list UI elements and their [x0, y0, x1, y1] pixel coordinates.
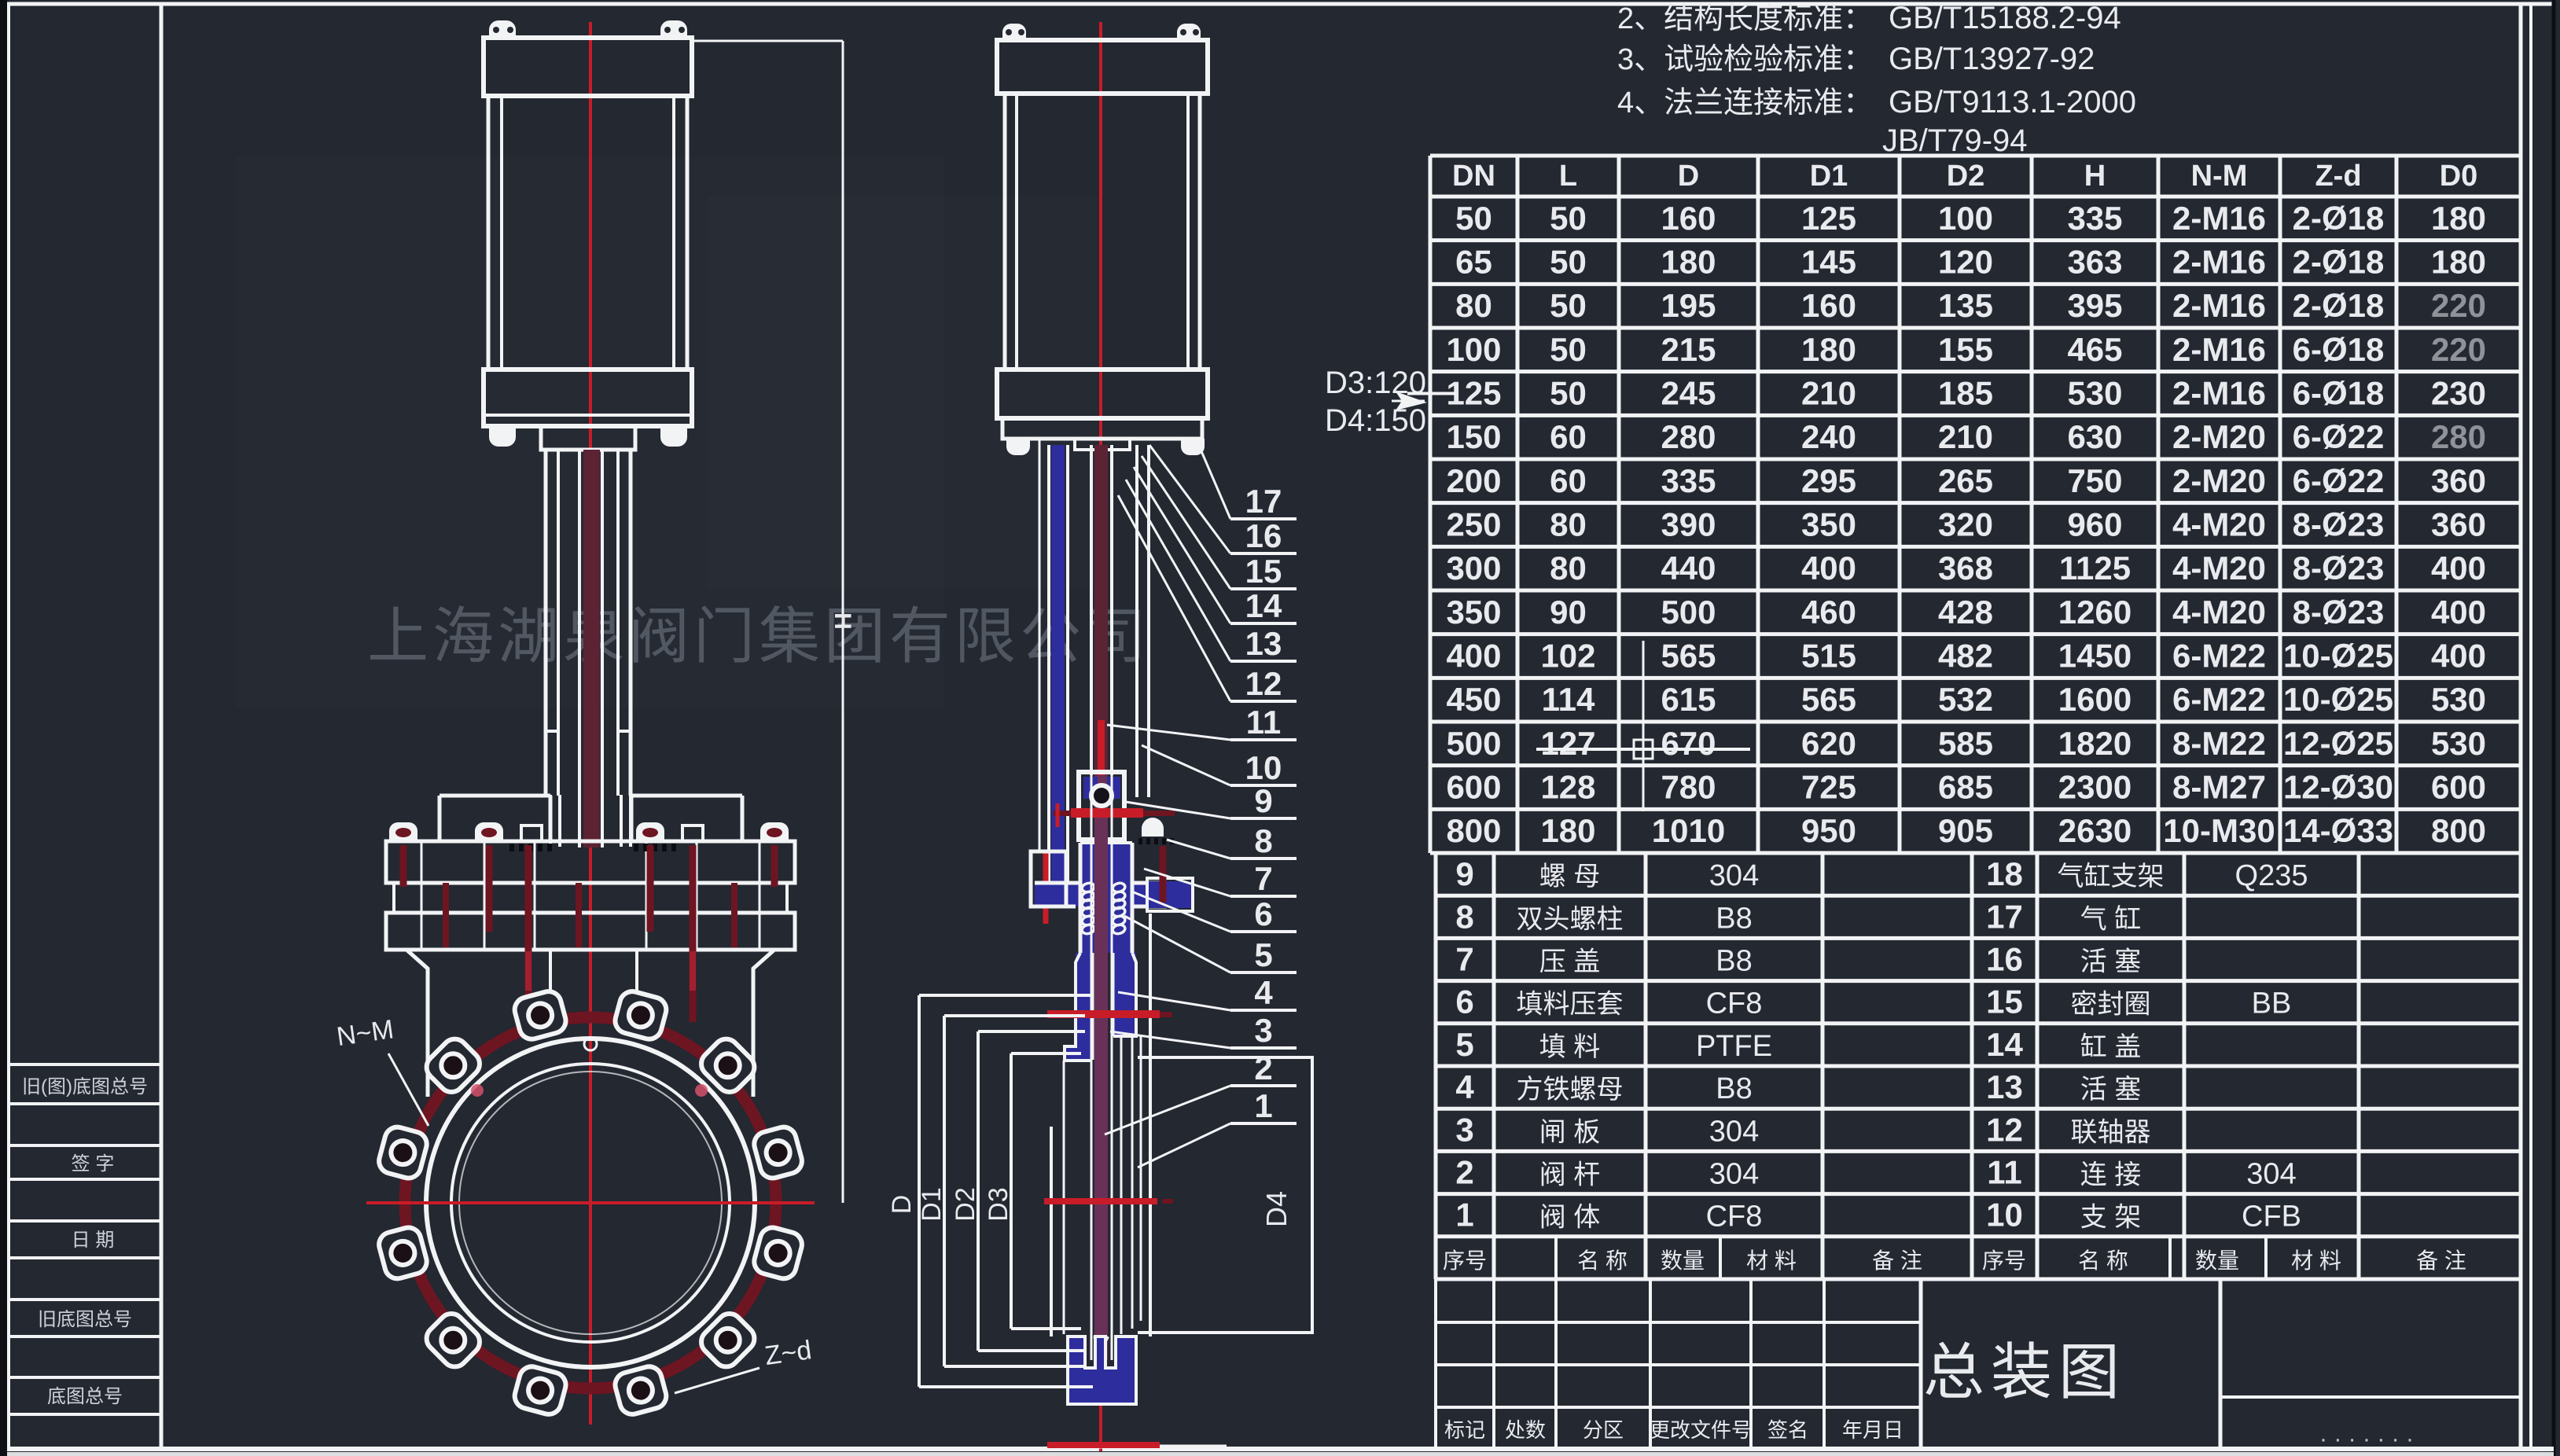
svg-text:1260: 1260 [2058, 594, 2131, 631]
svg-text:D3: D3 [984, 1187, 1013, 1221]
svg-text:460: 460 [1801, 594, 1856, 631]
svg-text:4-M20: 4-M20 [2172, 594, 2266, 631]
svg-text:725: 725 [1801, 769, 1856, 806]
svg-text:600: 600 [2431, 769, 2486, 806]
svg-text:8: 8 [1254, 822, 1272, 859]
svg-text:CF8: CF8 [1706, 987, 1763, 1020]
svg-text:17: 17 [1245, 483, 1282, 520]
svg-text:2-M20: 2-M20 [2172, 418, 2266, 455]
svg-text:名 称: 名 称 [2078, 1248, 2128, 1273]
svg-text:活 塞: 活 塞 [2080, 947, 2141, 977]
svg-text:填 料: 填 料 [1539, 1032, 1600, 1062]
svg-text:482: 482 [1938, 638, 1993, 675]
svg-text:2300: 2300 [2058, 769, 2131, 806]
svg-text:D4: D4 [1260, 1191, 1293, 1227]
svg-text:B8: B8 [1716, 1072, 1752, 1105]
svg-text:阀 体: 阀 体 [1539, 1203, 1600, 1233]
svg-text:950: 950 [1801, 812, 1856, 849]
svg-text:3、试验检验标准：: 3、试验检验标准： [1617, 43, 1873, 76]
svg-text:80: 80 [1550, 550, 1587, 586]
svg-text:15: 15 [1986, 984, 2023, 1020]
svg-text:530: 530 [2431, 681, 2486, 718]
svg-text:9: 9 [1455, 855, 1473, 892]
svg-text:60: 60 [1550, 418, 1587, 455]
svg-text:总装图: 总装图 [1923, 1337, 2126, 1406]
svg-text:13: 13 [1986, 1068, 2023, 1105]
svg-text:分区: 分区 [1583, 1418, 1624, 1442]
svg-text:18: 18 [1986, 855, 2023, 892]
svg-text:500: 500 [1661, 594, 1716, 631]
svg-text:材 料: 材 料 [1746, 1248, 1797, 1273]
svg-text:180: 180 [1801, 331, 1856, 368]
svg-text:1450: 1450 [2058, 638, 2131, 675]
svg-text:数量: 数量 [2195, 1248, 2239, 1273]
svg-text:1125: 1125 [2059, 550, 2131, 586]
svg-text:密封圈: 密封圈 [2071, 990, 2151, 1020]
svg-text:11: 11 [1987, 1154, 2021, 1191]
svg-text:585: 585 [1938, 725, 1993, 762]
svg-text:230: 230 [2431, 375, 2486, 412]
svg-text:400: 400 [1446, 638, 1501, 675]
svg-text:50: 50 [1550, 244, 1587, 281]
svg-text:D2: D2 [1947, 160, 1985, 193]
svg-text:12: 12 [1986, 1111, 2023, 1148]
svg-text:2-M16: 2-M16 [2172, 375, 2266, 412]
svg-text:数量: 数量 [1661, 1248, 1705, 1273]
svg-text:360: 360 [2431, 506, 2486, 543]
svg-text:300: 300 [1446, 550, 1501, 586]
svg-text:联轴器: 联轴器 [2071, 1117, 2151, 1147]
svg-text:D1: D1 [1810, 160, 1848, 193]
svg-text:1: 1 [1254, 1087, 1272, 1124]
svg-text:17: 17 [1986, 898, 2023, 935]
svg-text:4-M20: 4-M20 [2172, 506, 2266, 543]
svg-text:序号: 序号 [1982, 1248, 2026, 1273]
svg-text:160: 160 [1661, 200, 1716, 237]
svg-text:标记: 标记 [1444, 1418, 1485, 1442]
svg-text:250: 250 [1446, 506, 1501, 543]
svg-text:2: 2 [1254, 1050, 1272, 1086]
svg-text:备 注: 备 注 [2416, 1248, 2466, 1273]
svg-text:螺 母: 螺 母 [1539, 862, 1600, 892]
svg-text:填料压套: 填料压套 [1517, 990, 1624, 1020]
svg-text:气 缸: 气 缸 [2080, 904, 2141, 934]
svg-text:780: 780 [1661, 769, 1716, 806]
svg-text:395: 395 [2067, 287, 2122, 324]
svg-text:304: 304 [1709, 1158, 1759, 1191]
svg-text:10-Ø25: 10-Ø25 [2283, 681, 2393, 718]
svg-text:400: 400 [2431, 638, 2486, 675]
svg-text:9: 9 [1254, 782, 1272, 819]
svg-text:180: 180 [2431, 244, 2486, 281]
svg-text:4、法兰连接标准：: 4、法兰连接标准： [1617, 86, 1873, 119]
svg-text:280: 280 [1661, 418, 1716, 455]
svg-text:6: 6 [1254, 895, 1272, 932]
svg-text:390: 390 [1661, 506, 1716, 543]
svg-text:515: 515 [1801, 638, 1856, 675]
svg-text:旧底图总号: 旧底图总号 [38, 1309, 132, 1330]
svg-text:GB/T15188.2-94: GB/T15188.2-94 [1889, 1, 2121, 35]
svg-text:闸 板: 闸 板 [1539, 1117, 1600, 1147]
svg-text:11: 11 [1246, 704, 1281, 741]
svg-text:14: 14 [1986, 1026, 2023, 1063]
svg-text:100: 100 [1938, 200, 1993, 237]
svg-text:2-M16: 2-M16 [2172, 287, 2266, 324]
svg-text:905: 905 [1938, 812, 1993, 849]
svg-text:8: 8 [1455, 898, 1473, 935]
svg-text:280: 280 [2431, 418, 2486, 455]
svg-text:活 塞: 活 塞 [2080, 1075, 2141, 1105]
svg-text:200: 200 [1446, 462, 1501, 499]
svg-text:530: 530 [2431, 725, 2486, 762]
svg-text:CFB: CFB [2242, 1200, 2301, 1234]
svg-text:6-Ø18: 6-Ø18 [2293, 331, 2385, 368]
svg-text:102: 102 [1540, 638, 1595, 675]
svg-text:180: 180 [1661, 244, 1716, 281]
svg-text:400: 400 [2431, 594, 2486, 631]
svg-text:D1: D1 [917, 1187, 947, 1221]
svg-text:2-Ø18: 2-Ø18 [2293, 287, 2385, 324]
svg-text:10-Ø25: 10-Ø25 [2283, 638, 2393, 675]
svg-text:180: 180 [2431, 200, 2486, 237]
svg-text:JB/T79-94: JB/T79-94 [1882, 123, 2028, 158]
svg-text:50: 50 [1550, 287, 1587, 324]
svg-text:气缸支架: 气缸支架 [2058, 862, 2165, 892]
svg-text:8-Ø23: 8-Ø23 [2293, 506, 2385, 543]
svg-text:上海湖泉阀门集团有限公司: 上海湖泉阀门集团有限公司 [367, 601, 1150, 671]
svg-text:双头螺柱: 双头螺柱 [1517, 904, 1624, 934]
svg-text:材 料: 材 料 [2291, 1248, 2341, 1273]
svg-text:PTFE: PTFE [1696, 1030, 1772, 1063]
svg-text:Z-d: Z-d [2315, 160, 2361, 193]
svg-text:125: 125 [1801, 200, 1856, 237]
svg-text:2-M16: 2-M16 [2172, 200, 2266, 237]
svg-text:名 称: 名 称 [1577, 1248, 1628, 1273]
svg-text:90: 90 [1550, 594, 1587, 631]
svg-text:8-Ø23: 8-Ø23 [2293, 550, 2385, 586]
svg-text:1820: 1820 [2058, 725, 2131, 762]
svg-text:2-M20: 2-M20 [2172, 462, 2266, 499]
svg-text:方铁螺母: 方铁螺母 [1517, 1075, 1624, 1105]
svg-text:440: 440 [1661, 550, 1716, 586]
svg-text:6-M22: 6-M22 [2172, 681, 2266, 718]
svg-text:65: 65 [1455, 244, 1492, 281]
svg-text:304: 304 [2246, 1158, 2296, 1191]
svg-text:363: 363 [2067, 244, 2122, 281]
svg-text:4-M20: 4-M20 [2172, 550, 2266, 586]
svg-text:签名: 签名 [1767, 1418, 1808, 1442]
svg-text:304: 304 [1709, 1115, 1759, 1148]
svg-text:连 接: 连 接 [2080, 1160, 2141, 1190]
svg-text:565: 565 [1801, 681, 1856, 718]
svg-text:Q235: Q235 [2235, 859, 2308, 892]
svg-text:GB/T9113.1-2000: GB/T9113.1-2000 [1889, 85, 2136, 119]
svg-text:底图总号: 底图总号 [47, 1386, 123, 1407]
svg-text:16: 16 [1245, 517, 1282, 554]
svg-text:2630: 2630 [2058, 812, 2131, 849]
svg-text:年月日: 年月日 [1842, 1418, 1903, 1442]
svg-text:7: 7 [1455, 941, 1473, 978]
svg-text:80: 80 [1455, 287, 1492, 324]
svg-text:BB: BB [2252, 987, 2292, 1020]
svg-text:60: 60 [1550, 462, 1587, 499]
svg-text:备 注: 备 注 [1872, 1248, 1922, 1273]
svg-text:128: 128 [1540, 769, 1595, 806]
svg-text:6-Ø22: 6-Ø22 [2293, 462, 2385, 499]
svg-text:缸 盖: 缸 盖 [2080, 1032, 2141, 1062]
svg-text:400: 400 [1801, 550, 1856, 586]
svg-text:1010: 1010 [1652, 812, 1725, 849]
svg-text:320: 320 [1938, 506, 1993, 543]
svg-text:D0: D0 [2440, 160, 2478, 193]
svg-text:615: 615 [1661, 681, 1716, 718]
svg-text:155: 155 [1938, 331, 1993, 368]
svg-text:685: 685 [1938, 769, 1993, 806]
svg-text:600: 600 [1446, 769, 1501, 806]
svg-text:D4:150: D4:150 [1325, 403, 1426, 438]
svg-text:1600: 1600 [2058, 681, 2131, 718]
svg-text:4: 4 [1455, 1068, 1474, 1105]
svg-text:12: 12 [1245, 665, 1282, 702]
svg-text:530: 530 [2067, 375, 2122, 412]
svg-text:750: 750 [2067, 462, 2122, 499]
svg-text:2-M16: 2-M16 [2172, 244, 2266, 281]
svg-text:10: 10 [1245, 749, 1282, 786]
svg-text:2-Ø18: 2-Ø18 [2293, 200, 2385, 237]
svg-text:更改文件号: 更改文件号 [1650, 1418, 1752, 1442]
svg-text:360: 360 [2431, 462, 2486, 499]
svg-text:16: 16 [1986, 941, 2023, 978]
svg-text:220: 220 [2431, 287, 2486, 324]
svg-text:215: 215 [1661, 331, 1716, 368]
svg-text:265: 265 [1938, 462, 1993, 499]
svg-text:50: 50 [1550, 331, 1587, 368]
svg-text:304: 304 [1709, 859, 1759, 892]
svg-text:245: 245 [1661, 375, 1716, 412]
svg-text:800: 800 [1446, 812, 1501, 849]
svg-text:6-Ø22: 6-Ø22 [2293, 418, 2385, 455]
svg-text:6-M22: 6-M22 [2172, 638, 2266, 675]
svg-text:B8: B8 [1716, 945, 1752, 978]
svg-text:处数: 处数 [1505, 1418, 1546, 1442]
svg-text:450: 450 [1446, 681, 1501, 718]
svg-text:240: 240 [1801, 418, 1856, 455]
svg-text:150: 150 [1446, 418, 1501, 455]
svg-text:D2: D2 [951, 1187, 980, 1221]
svg-text:620: 620 [1801, 725, 1856, 762]
svg-text:10: 10 [1986, 1197, 2023, 1234]
svg-text:465: 465 [2067, 331, 2122, 368]
svg-text:序号: 序号 [1443, 1248, 1487, 1273]
svg-text:114: 114 [1542, 681, 1595, 718]
svg-text:13: 13 [1245, 625, 1282, 662]
svg-text:335: 335 [2067, 200, 2122, 237]
svg-text:12-Ø30: 12-Ø30 [2283, 769, 2393, 806]
svg-text:7: 7 [1254, 860, 1272, 897]
svg-text:3: 3 [1254, 1012, 1272, 1049]
svg-text:50: 50 [1550, 375, 1587, 412]
svg-text:368: 368 [1938, 550, 1993, 586]
svg-text:阀 杆: 阀 杆 [1539, 1160, 1600, 1190]
svg-text:12-Ø25: 12-Ø25 [2283, 725, 2393, 762]
svg-text:160: 160 [1801, 287, 1856, 324]
svg-text:H: H [829, 612, 855, 630]
svg-text:185: 185 [1938, 375, 1993, 412]
svg-text:127: 127 [1540, 725, 1595, 762]
svg-text:210: 210 [1938, 418, 1993, 455]
svg-text:195: 195 [1661, 287, 1716, 324]
svg-text:400: 400 [2431, 550, 2486, 586]
svg-text:2: 2 [1455, 1154, 1473, 1191]
svg-text:135: 135 [1938, 287, 1993, 324]
svg-text:960: 960 [2067, 506, 2122, 543]
svg-text:532: 532 [1938, 681, 1993, 718]
svg-text:D: D [1678, 160, 1699, 193]
svg-text:565: 565 [1661, 638, 1716, 675]
svg-text:GB/T13927-92: GB/T13927-92 [1889, 42, 2095, 76]
svg-text:14-Ø33: 14-Ø33 [2283, 812, 2393, 849]
svg-text:120: 120 [1938, 244, 1993, 281]
svg-text:L: L [1559, 160, 1577, 193]
svg-text:50: 50 [1550, 200, 1587, 237]
svg-text:145: 145 [1801, 244, 1856, 281]
svg-text:630: 630 [2067, 418, 2122, 455]
svg-text:670: 670 [1661, 725, 1716, 762]
svg-text:500: 500 [1446, 725, 1501, 762]
svg-text:5: 5 [1455, 1026, 1473, 1063]
svg-text:日 期: 日 期 [72, 1230, 115, 1251]
svg-text:支 架: 支 架 [2080, 1203, 2141, 1233]
svg-text:350: 350 [1801, 506, 1856, 543]
svg-text:350: 350 [1446, 594, 1501, 631]
svg-text:签 字: 签 字 [72, 1153, 115, 1175]
svg-text:H: H [2084, 160, 2106, 193]
svg-text:220: 220 [2431, 331, 2486, 368]
svg-text:210: 210 [1801, 375, 1856, 412]
svg-text:295: 295 [1801, 462, 1856, 499]
svg-text:428: 428 [1938, 594, 1993, 631]
svg-text:压 盖: 压 盖 [1539, 947, 1600, 977]
svg-text:5: 5 [1254, 936, 1272, 973]
svg-text:3: 3 [1455, 1111, 1473, 1148]
svg-text:2-Ø18: 2-Ø18 [2293, 244, 2385, 281]
svg-text:15: 15 [1245, 553, 1282, 590]
svg-text:14: 14 [1245, 587, 1282, 624]
svg-text:4: 4 [1254, 974, 1273, 1011]
svg-text:B8: B8 [1716, 902, 1752, 935]
svg-text:D: D [887, 1195, 917, 1215]
svg-text:旧(图)底图总号: 旧(图)底图总号 [22, 1076, 148, 1098]
svg-text:1: 1 [1455, 1197, 1473, 1234]
svg-text:8-M27: 8-M27 [2172, 769, 2266, 806]
svg-text:100: 100 [1446, 331, 1501, 368]
svg-text:8-M22: 8-M22 [2172, 725, 2266, 762]
svg-text:· · · · · · ·: · · · · · · · [2319, 1426, 2414, 1452]
svg-text:2-M16: 2-M16 [2172, 331, 2266, 368]
svg-text:180: 180 [1540, 812, 1595, 849]
svg-text:335: 335 [1661, 462, 1716, 499]
svg-text:80: 80 [1550, 506, 1587, 543]
svg-text:N-M: N-M [2191, 160, 2248, 193]
svg-text:8-Ø23: 8-Ø23 [2293, 594, 2385, 631]
svg-text:10-M30: 10-M30 [2163, 812, 2275, 849]
svg-text:50: 50 [1455, 200, 1492, 237]
svg-text:6: 6 [1455, 984, 1473, 1020]
svg-text:CF8: CF8 [1706, 1200, 1763, 1234]
svg-text:800: 800 [2431, 812, 2486, 849]
svg-text:2、结构长度标准：: 2、结构长度标准： [1617, 2, 1873, 35]
svg-text:DN: DN [1452, 160, 1495, 193]
svg-text:6-Ø18: 6-Ø18 [2293, 375, 2385, 412]
